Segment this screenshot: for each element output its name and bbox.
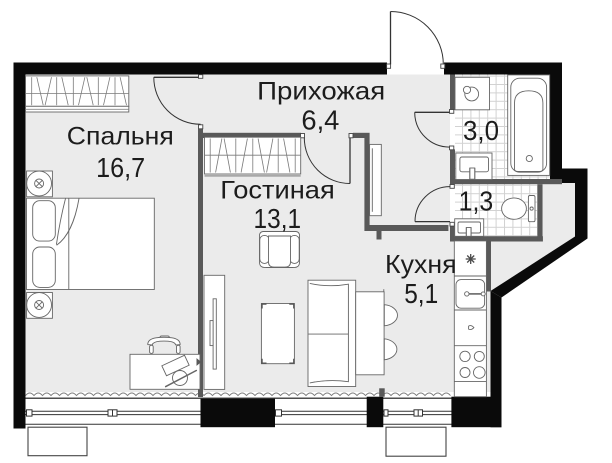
svg-text:Гостиная: Гостиная (220, 177, 335, 205)
svg-text:6,4: 6,4 (301, 105, 339, 136)
svg-text:1,3: 1,3 (459, 186, 494, 217)
svg-text:3,0: 3,0 (463, 115, 499, 146)
svg-text:13,1: 13,1 (254, 203, 302, 234)
svg-text:Прихожая: Прихожая (257, 78, 385, 106)
svg-text:5,1: 5,1 (404, 278, 438, 309)
svg-text:Спальня: Спальня (67, 123, 174, 151)
svg-text:Кухня: Кухня (385, 249, 457, 279)
svg-text:16,7: 16,7 (96, 152, 145, 183)
